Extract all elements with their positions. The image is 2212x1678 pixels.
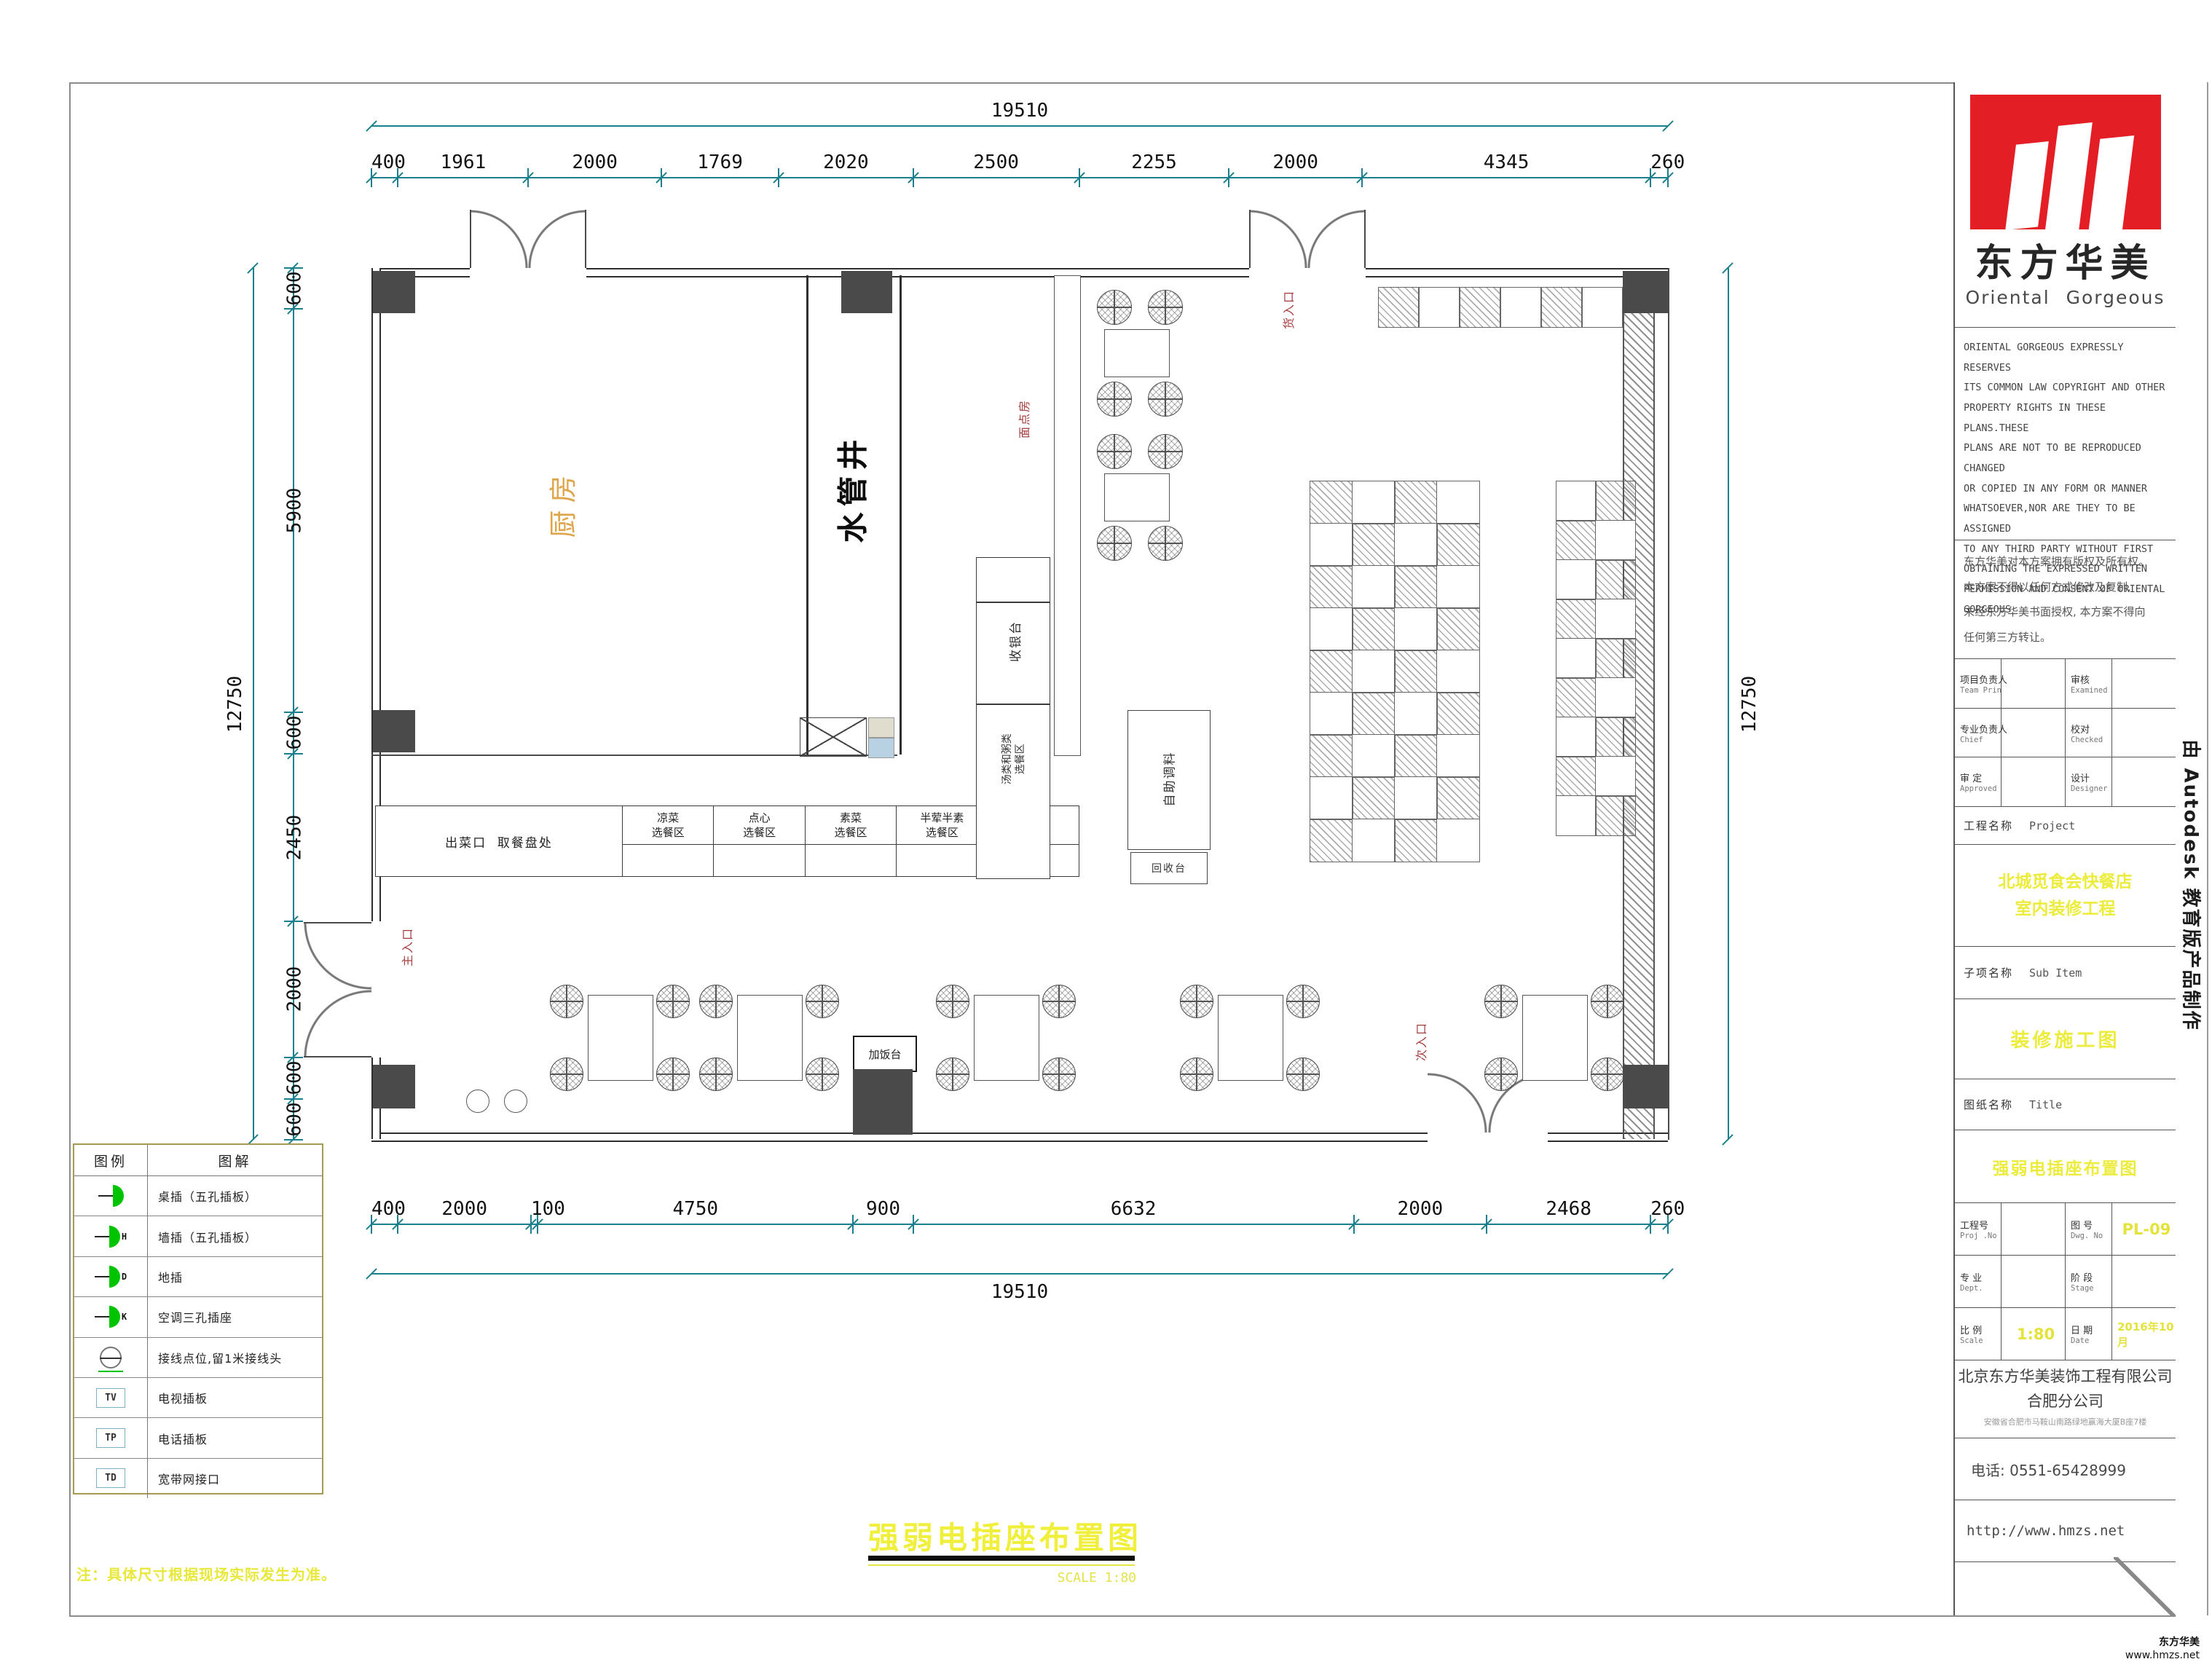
dimension-label: 5900 — [280, 309, 309, 712]
dimension-label: 2000 — [398, 1197, 530, 1221]
dining-table — [1419, 287, 1460, 328]
project-label-cn: 工程名称 — [1964, 818, 2013, 833]
dining-table — [1436, 734, 1480, 778]
dimension-label: 600 — [280, 268, 309, 309]
footer-site: www.hmzs.net — [2061, 1649, 2200, 1662]
dimension-line-bottom-total: 19510 — [371, 1273, 1668, 1275]
title-block-row: 专业负责人Chief校对Checked — [1955, 709, 2176, 758]
booth-seat — [1595, 638, 1636, 679]
booth-seat — [1556, 599, 1597, 639]
dimension-label: 2000 — [1229, 151, 1361, 174]
dining-table — [1352, 565, 1396, 609]
booth-seat — [1436, 523, 1480, 567]
dimension-label: 2500 — [913, 151, 1079, 174]
subitem-label-en: Sub Item — [2029, 966, 2082, 980]
sheet-label-en: Title — [2029, 1098, 2062, 1111]
door-arc — [470, 210, 528, 268]
self-service-label: 自助调料 — [1110, 771, 1227, 787]
tv-outlet-icon: TV — [96, 1388, 125, 1408]
sheet-label-cn: 图纸名称 — [1964, 1097, 2013, 1112]
field-label: 校对Checked — [2066, 709, 2112, 757]
booth-seat — [1310, 481, 1353, 524]
field-value — [2112, 709, 2176, 757]
field-value: PL-09 — [2112, 1203, 2176, 1255]
dining-table — [1595, 520, 1636, 561]
dimension-label: 600 — [280, 1099, 309, 1140]
dining-table — [1310, 607, 1353, 651]
drawing-title: 强弱电插座布置图 — [867, 1513, 1144, 1558]
legend-row: K空调三孔插座 — [74, 1297, 322, 1337]
goods-entrance-label: 货入口 — [1251, 273, 1324, 346]
dining-table — [1104, 329, 1170, 377]
equipment-square — [868, 738, 894, 758]
page-footer: 东方华美 www.hmzs.net — [2061, 1636, 2200, 1662]
stool — [504, 1090, 527, 1113]
sheet-label-row: 图纸名称 Title — [1955, 1079, 2176, 1130]
door-leaf — [1249, 210, 1251, 268]
legend-row: 桌插（五孔插板） — [74, 1176, 322, 1216]
dim-tick — [1722, 1134, 1733, 1146]
legend-desc: 接线点位,留1米接线头 — [148, 1338, 322, 1377]
structural-column — [853, 1069, 913, 1135]
dining-table — [1582, 287, 1623, 328]
dining-chair-round — [1097, 290, 1132, 325]
field-value — [2002, 709, 2066, 757]
booth-seat — [1556, 677, 1597, 718]
legend-row: TD宽带网接口 — [74, 1459, 322, 1498]
dining-chair-round — [1148, 434, 1183, 469]
dining-table — [1394, 776, 1438, 820]
door-leaf — [304, 1056, 371, 1057]
dining-table — [1394, 607, 1438, 651]
dim-tick — [366, 1268, 377, 1280]
footer-brand: 东方华美 — [2061, 1636, 2200, 1649]
legend-row: H墙插（五孔插板） — [74, 1216, 322, 1256]
dining-chair-round — [1591, 985, 1624, 1018]
dining-table — [1436, 650, 1480, 693]
dimension-label: 600 — [280, 1057, 309, 1098]
booth-seat — [1352, 776, 1396, 820]
copyright-english: ORIENTAL GORGEOUS EXPRESSLY RESERVES ITS… — [1955, 328, 2176, 540]
field-label: 工程号Proj .No — [1955, 1203, 2002, 1255]
field-label: 阶 段Stage — [2066, 1256, 2112, 1307]
dining-chair-round — [1484, 985, 1518, 1018]
dining-table — [1556, 795, 1597, 836]
autodesk-educational-watermark: 由 Autodesk 教育版产品制作 — [2176, 626, 2208, 1143]
project-label-en: Project — [2029, 819, 2075, 832]
dimension-label: 4345 — [1362, 151, 1650, 174]
booth-seat — [1556, 520, 1597, 561]
dining-chair-round — [1097, 526, 1132, 561]
booth-seat — [1394, 734, 1438, 778]
field-value — [2112, 757, 2176, 806]
legend-symbol-cell: D — [74, 1257, 148, 1296]
counter-line1: 凉菜 — [657, 811, 679, 825]
return-counter: 回收台 — [1130, 852, 1208, 884]
dining-table — [1352, 481, 1396, 524]
company-address: 安徽省合肥市马鞍山南路绿地赢海大厦B座7楼 — [1955, 1416, 2176, 1427]
dimension-label: 260 — [1650, 1197, 1668, 1221]
structural-column — [373, 710, 415, 752]
dining-chair-round — [1148, 290, 1183, 325]
booth-seat — [1310, 734, 1353, 778]
title-block-row: 项目负责人Team Prin审核Examined — [1955, 659, 2176, 709]
dining-chair-round — [806, 1057, 839, 1091]
legend-desc: 电话插板 — [148, 1418, 322, 1457]
dining-chair-round — [1180, 1057, 1213, 1091]
door-arc — [304, 990, 371, 1057]
structural-column — [373, 271, 415, 313]
phone-outlet-icon: TP — [96, 1428, 125, 1448]
dimension-line-left-segments: 600590060024502000600600 — [293, 268, 294, 1140]
legend-desc: 电视插板 — [148, 1378, 322, 1417]
dimension-label: 12750 — [221, 268, 250, 1140]
dining-table — [1500, 287, 1541, 328]
dimension-label: 6632 — [913, 1197, 1354, 1221]
legend-symbol-cell: TV — [74, 1378, 148, 1417]
field-label: 项目负责人Team Prin — [1955, 659, 2002, 708]
dining-table — [1104, 473, 1170, 521]
water-shaft-label: 水管井 — [771, 408, 931, 568]
legend-desc: 地插 — [148, 1257, 322, 1296]
dimension-line-top-total: 19510 — [371, 125, 1668, 127]
booth-seat — [1394, 565, 1438, 609]
dimension-label: 2000 — [1354, 1197, 1487, 1221]
dimension-label: 2450 — [280, 754, 309, 921]
counter-line1: 素菜 — [840, 811, 862, 825]
booth-seat — [1310, 565, 1353, 609]
field-value — [2112, 1256, 2176, 1307]
booth-seat — [1595, 717, 1636, 757]
dim-tick — [1722, 262, 1733, 274]
booth-seat — [1595, 559, 1636, 600]
equipment-square — [868, 717, 894, 738]
counter-line2: 选餐区 — [926, 825, 959, 840]
dining-chair-round — [1042, 1057, 1076, 1091]
booth-seat — [1310, 650, 1353, 693]
plan-right-boundary — [1668, 268, 1669, 1140]
legend-desc: 桌插（五孔插板） — [148, 1176, 322, 1216]
booth-seat — [1352, 523, 1396, 567]
dining-table — [1352, 819, 1396, 862]
dimension-label: 12750 — [1735, 268, 1764, 1140]
junction-point-icon — [100, 1347, 122, 1368]
door-arc — [1249, 210, 1307, 268]
field-label: 日 期Date — [2066, 1308, 2112, 1360]
counter-line2: 选餐区 — [652, 825, 685, 840]
dining-table — [1556, 717, 1597, 757]
booth-seat — [1394, 819, 1438, 862]
dining-chair-round — [656, 1057, 690, 1091]
field-label: 设计Designer — [2066, 757, 2112, 806]
counter-cell: 凉菜选餐区 — [623, 806, 714, 876]
stool — [466, 1090, 489, 1113]
door-arc — [1428, 1073, 1487, 1133]
field-label: 比 例Scale — [1955, 1308, 2002, 1360]
dimension-label: 19510 — [371, 1280, 1668, 1304]
legend-table: 图例 图解 桌插（五孔插板）H墙插（五孔插板）D地插K空调三孔插座接线点位,留1… — [73, 1143, 323, 1494]
field-label: 图 号Dwg. No — [2066, 1203, 2112, 1255]
dining-chair-round — [1148, 526, 1183, 561]
dining-table — [1556, 481, 1597, 521]
dining-chair-round — [936, 1057, 969, 1091]
plug-socket-icon — [98, 1185, 124, 1207]
legend-symbol-cell: TP — [74, 1418, 148, 1457]
dining-chair-round — [1042, 985, 1076, 1018]
dimension-label: 19510 — [371, 99, 1668, 122]
booth-seat — [1460, 287, 1500, 328]
company-phone: 电话: 0551-65428999 — [1955, 1438, 2176, 1500]
dim-tick — [1662, 1268, 1674, 1280]
company-website: http://www.hmzs.net — [1955, 1500, 2176, 1562]
dining-table — [1310, 523, 1353, 567]
soup-area-label: 汤类和粥类 选餐区 — [956, 743, 1072, 775]
dining-chair-round — [550, 1057, 583, 1091]
dimension-label: 400 — [371, 1197, 398, 1221]
legend-header-symbol: 图例 — [74, 1145, 148, 1175]
door-arc — [1307, 210, 1366, 268]
dimension-label: 260 — [1650, 151, 1668, 174]
booth-seat — [1378, 287, 1419, 328]
title-block-row: 工程号Proj .No图 号Dwg. NoPL-09 — [1955, 1203, 2176, 1256]
title-block-row: 专 业Dept.阶 段Stage — [1955, 1256, 2176, 1308]
dining-table — [1595, 599, 1636, 639]
booth-seat — [1436, 607, 1480, 651]
wall — [586, 268, 1249, 277]
counter-line1: 半荤半素 — [920, 811, 964, 825]
dining-table — [1310, 692, 1353, 736]
project-label-row: 工程名称 Project — [1955, 807, 2176, 845]
legend-symbol-cell: K — [74, 1297, 148, 1336]
dining-chair-round — [699, 985, 733, 1018]
door-leaf — [1364, 210, 1366, 268]
dining-chair-round — [1286, 985, 1320, 1018]
field-value: 2016年10月 — [2112, 1308, 2176, 1360]
main-entrance-label: 主入口 — [370, 910, 443, 983]
legend-symbol-cell — [74, 1338, 148, 1377]
subitem-label-row: 子项名称 Sub Item — [1955, 947, 2176, 999]
dining-chair-round — [1148, 382, 1183, 417]
dining-chair-round — [656, 985, 690, 1018]
field-value: 1:80 — [2002, 1308, 2066, 1360]
structural-column — [373, 1065, 415, 1108]
dimension-label: 2468 — [1487, 1197, 1650, 1221]
general-note: 注：具体尺寸根据现场实际发生为准。 — [76, 1563, 336, 1584]
dining-table — [737, 995, 803, 1081]
field-value — [2112, 659, 2176, 708]
legend-header: 图例 图解 — [74, 1145, 322, 1176]
dining-chair-round — [1286, 1057, 1320, 1091]
dining-chair-round — [936, 985, 969, 1018]
company-logo: 东方华美 Oriental Gorgeous — [1955, 82, 2176, 328]
dining-chair-round — [1180, 985, 1213, 1018]
legend-symbol-cell — [74, 1176, 148, 1216]
door-leaf — [470, 210, 471, 268]
booth-seat — [1436, 776, 1480, 820]
dimension-line-left-total: 12750 — [253, 268, 254, 1140]
legend-row: TP电话插板 — [74, 1418, 322, 1458]
dining-table — [1436, 819, 1480, 862]
title-block: 东方华美 Oriental Gorgeous ORIENTAL GORGEOUS… — [1953, 82, 2176, 1615]
field-value — [2002, 1256, 2066, 1307]
counter-cell-label: 点心选餐区 — [714, 806, 804, 845]
personnel-table: 项目负责人Team Prin审核Examined专业负责人Chief校对Chec… — [1955, 659, 2176, 807]
structural-column — [841, 271, 892, 313]
dining-table — [1556, 559, 1597, 600]
pastry-counter — [1054, 275, 1081, 756]
dimension-label: 1769 — [661, 151, 779, 174]
rice-counter: 加饭台 — [853, 1036, 917, 1072]
dining-table — [1352, 734, 1396, 778]
counter-line1: 点心 — [749, 811, 771, 825]
structural-column — [1623, 271, 1668, 313]
network-outlet-icon: TD — [96, 1468, 125, 1488]
legend-desc: 墙插（五孔插板） — [148, 1216, 322, 1256]
pastry-room-label: 面点房 — [983, 379, 1063, 459]
crossed-equipment-box — [800, 717, 867, 757]
booth-seat — [1436, 692, 1480, 736]
dining-table — [1556, 638, 1597, 679]
serving-exit-cell: 出菜口 取餐盘处 — [376, 806, 623, 876]
subitem-name: 装修施工图 — [1955, 999, 2176, 1079]
project-name: 北城觅食会快餐店 室内装修工程 — [1955, 845, 2176, 947]
dimension-label: 600 — [280, 712, 309, 753]
fold-corner — [1955, 1562, 2176, 1615]
dining-chair-round — [1097, 382, 1132, 417]
dining-table — [1352, 650, 1396, 693]
counter-cell-label: 凉菜选餐区 — [623, 806, 713, 845]
brand-name-en: Oriental Gorgeous — [1965, 287, 2165, 308]
title-block-row: 审 定Approved设计Designer — [1955, 757, 2176, 806]
sheet-name: 强弱电插座布置图 — [1955, 1130, 2176, 1203]
dining-table — [1595, 756, 1636, 797]
door-leaf — [585, 210, 586, 268]
title-underline — [868, 1556, 1135, 1561]
dining-chair-round — [1097, 434, 1132, 469]
dining-table — [1436, 565, 1480, 609]
door-leaf — [304, 922, 371, 923]
dining-table — [1522, 995, 1588, 1081]
legend-desc: 宽带网接口 — [148, 1459, 322, 1498]
field-value — [2002, 757, 2066, 806]
dining-table — [1394, 692, 1438, 736]
dining-chair-round — [699, 1057, 733, 1091]
dining-table — [1310, 776, 1353, 820]
dining-table — [588, 995, 653, 1081]
field-label: 审 定Approved — [1955, 757, 2002, 806]
drawing-info-grid: 工程号Proj .No图 号Dwg. NoPL-09专 业Dept.阶 段Sta… — [1955, 1203, 2176, 1360]
dimension-line-bottom-segments: 40020001004750900663220002468260 — [371, 1224, 1668, 1225]
booth-seat — [1595, 795, 1636, 836]
dining-chair-round — [1484, 1057, 1518, 1091]
dimension-label: 4750 — [538, 1197, 853, 1221]
dimension-line-right-total: 12750 — [1728, 268, 1729, 1140]
plug-socket-icon: D — [95, 1266, 127, 1288]
title-underline-accent — [868, 1564, 1135, 1566]
dining-table — [1394, 523, 1438, 567]
cashier-counter — [976, 557, 1050, 879]
fold-corner-line — [2114, 1557, 2176, 1615]
door-arc — [528, 210, 586, 268]
counter-cell-label: 素菜选餐区 — [806, 806, 896, 845]
dimension-label: 100 — [531, 1197, 538, 1221]
counter-cell: 素菜选餐区 — [806, 806, 897, 876]
dining-chair-round — [1591, 1057, 1624, 1091]
dimension-line-top-segments: 40019612000176920202500225520004345260 — [371, 177, 1668, 178]
title-block-row: 比 例Scale1:80日 期Date2016年10月 — [1955, 1308, 2176, 1360]
company-name-line1: 北京东方华美装饰工程有限公司 — [1955, 1365, 2176, 1387]
dimension-label: 900 — [853, 1197, 913, 1221]
legend-symbol-cell: H — [74, 1216, 148, 1256]
brand-name-cn: 东方华美 — [1975, 232, 2155, 287]
booth-seat — [1310, 819, 1353, 862]
floor-plan: 19510 4001961200017692020250022552000434… — [0, 0, 2212, 1678]
logo-mark-icon — [1970, 95, 2161, 229]
dining-table — [1218, 995, 1283, 1081]
secondary-entrance-label: 次入口 — [1384, 1005, 1457, 1078]
door-arc — [304, 922, 371, 990]
plug-socket-icon: K — [95, 1306, 127, 1328]
serving-counter-band: 出菜口 取餐盘处 凉菜选餐区点心选餐区素菜选餐区半荤半素选餐区荤菜选餐区 — [375, 805, 1079, 877]
soup-line2: 选餐区 — [1015, 744, 1026, 774]
field-label: 审核Examined — [2066, 659, 2112, 708]
dining-table — [974, 995, 1039, 1081]
dimension-label: 400 — [371, 151, 398, 174]
legend-desc: 空调三孔插座 — [148, 1297, 322, 1336]
dimension-label: 2020 — [779, 151, 913, 174]
soup-line1: 汤类和粥类 — [1001, 733, 1013, 784]
counter-cell-label: 半荤半素选餐区 — [897, 806, 987, 845]
counter-cell: 半荤半素选餐区 — [897, 806, 988, 876]
legend-symbol-cell: TD — [74, 1459, 148, 1498]
dining-chair-round — [806, 985, 839, 1018]
counter-line2: 选餐区 — [835, 825, 867, 840]
field-value — [2002, 1203, 2066, 1255]
legend-row: 接线点位,留1米接线头 — [74, 1338, 322, 1378]
field-label: 专 业Dept. — [1955, 1256, 2002, 1307]
dimension-label: 2000 — [528, 151, 661, 174]
dining-table — [1595, 677, 1636, 718]
kitchen-label: 厨房 — [506, 448, 615, 557]
cashier-label: 收银台 — [963, 634, 1065, 648]
field-value — [2002, 659, 2066, 708]
company-name-line2: 合肥分公司 — [1955, 1390, 2176, 1411]
counter-line2: 选餐区 — [743, 825, 776, 840]
booth-seat — [1352, 692, 1396, 736]
structural-column — [1623, 1065, 1668, 1108]
dining-table — [1436, 481, 1480, 524]
counter-cell: 点心选餐区 — [714, 806, 805, 876]
legend-rows: 桌插（五孔插板）H墙插（五孔插板）D地插K空调三孔插座接线点位,留1米接线头TV… — [74, 1176, 322, 1498]
booth-seat — [1394, 650, 1438, 693]
subitem-label-cn: 子项名称 — [1964, 965, 2013, 980]
plug-socket-icon: H — [95, 1226, 127, 1248]
legend-row: D地插 — [74, 1257, 322, 1297]
booth-seat — [1556, 756, 1597, 797]
legend-header-desc: 图解 — [148, 1145, 322, 1175]
dimension-label: 2255 — [1079, 151, 1229, 174]
booth-seat — [1595, 481, 1636, 521]
scale-note: SCALE 1:80 — [969, 1570, 1136, 1586]
booth-seat — [1352, 607, 1396, 651]
dimension-label: 1961 — [398, 151, 528, 174]
booth-seat — [1541, 287, 1582, 328]
copyright-chinese: 东方华美对本方案拥有版权及所有权。 本方案不得以任何方式修改及复制, 未经东方华… — [1955, 540, 2176, 659]
dining-chair-round — [550, 985, 583, 1018]
field-label: 专业负责人Chief — [1955, 709, 2002, 757]
company-info: 北京东方华美装饰工程有限公司 合肥分公司 安徽省合肥市马鞍山南路绿地赢海大厦B座… — [1955, 1360, 2176, 1438]
legend-row: TV电视插板 — [74, 1378, 322, 1418]
